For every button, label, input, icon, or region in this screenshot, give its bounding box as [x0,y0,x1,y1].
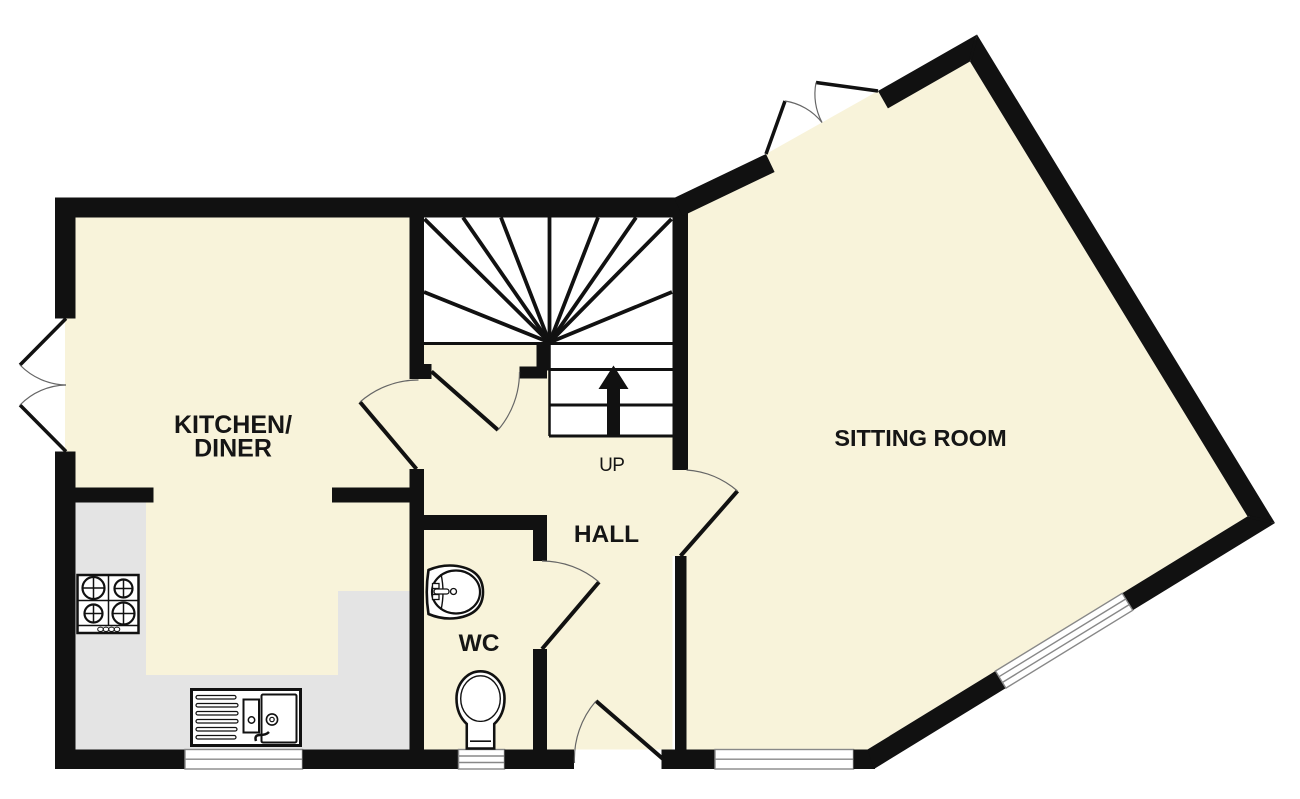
svg-text:SITTING ROOM: SITTING ROOM [834,425,1006,451]
svg-text:HALL: HALL [574,521,639,548]
svg-text:DINER: DINER [194,435,272,463]
svg-text:UP: UP [599,455,624,476]
svg-text:WC: WC [459,630,500,657]
